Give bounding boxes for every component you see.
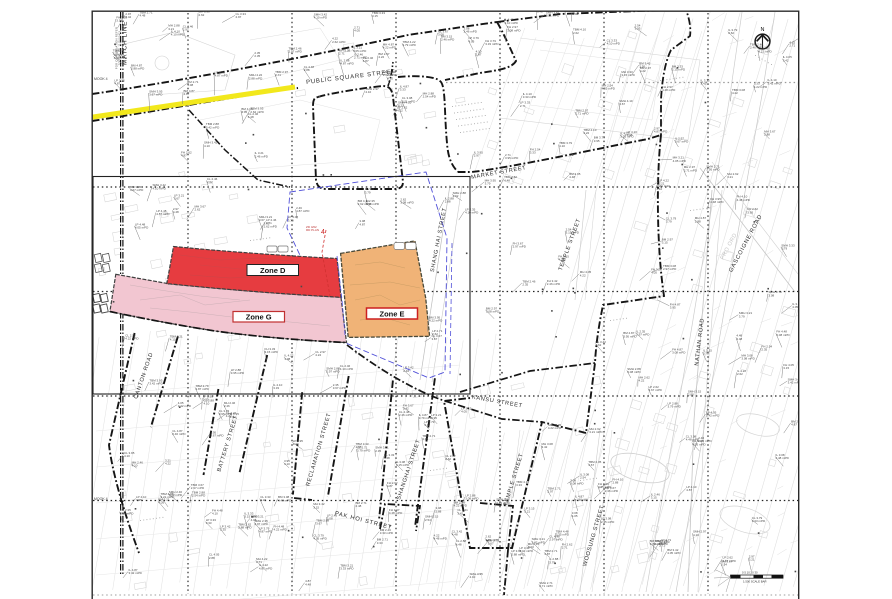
svg-text:3.95: 3.95: [635, 27, 641, 31]
svg-text:3.33: 3.33: [273, 386, 279, 390]
svg-text:2.46: 2.46: [403, 369, 409, 373]
svg-text:4.87 mPD: 4.87 mPD: [215, 74, 229, 78]
svg-text:3.15: 3.15: [651, 495, 657, 499]
svg-text:3.42: 3.42: [403, 407, 409, 411]
svg-text:3.42 mPD: 3.42 mPD: [149, 382, 163, 386]
svg-text:2.46 mPD: 2.46 mPD: [547, 282, 561, 286]
svg-text:4.48: 4.48: [456, 542, 462, 546]
svg-text:3.08 mPD: 3.08 mPD: [465, 497, 479, 501]
svg-text:3.33: 3.33: [516, 483, 522, 487]
svg-text:2.97: 2.97: [236, 15, 242, 19]
svg-text:2.88: 2.88: [695, 219, 701, 223]
svg-text:3.33: 3.33: [530, 150, 536, 154]
svg-text:4.10 mPD: 4.10 mPD: [153, 186, 167, 190]
svg-text:2.54 mPD: 2.54 mPD: [192, 493, 206, 497]
svg-text:2.35 mPD: 2.35 mPD: [601, 520, 615, 524]
svg-text:2.62 mPD: 2.62 mPD: [264, 224, 278, 228]
svg-text:2.71 mPD: 2.71 mPD: [575, 111, 589, 115]
svg-text:2.62: 2.62: [432, 332, 438, 336]
svg-text:3.79 mPD: 3.79 mPD: [668, 404, 682, 408]
svg-text:4.48 mPD: 4.48 mPD: [389, 511, 403, 515]
svg-text:4.48: 4.48: [173, 210, 179, 214]
svg-text:4.87: 4.87: [791, 423, 797, 427]
svg-text:4.10 mPD: 4.10 mPD: [340, 367, 354, 371]
svg-text:3.08 mPD: 3.08 mPD: [507, 28, 521, 32]
svg-text:2.71: 2.71: [266, 221, 272, 225]
svg-text:3.15 mPD: 3.15 mPD: [672, 67, 686, 71]
svg-text:4.48: 4.48: [305, 582, 311, 586]
svg-text:2.62: 2.62: [596, 343, 602, 347]
svg-text:2.54: 2.54: [721, 563, 727, 567]
svg-text:4.22 mPD: 4.22 mPD: [758, 50, 772, 54]
svg-text:4.87: 4.87: [181, 154, 187, 158]
svg-text:2.62: 2.62: [207, 180, 213, 184]
svg-text:3.08 mPD: 3.08 mPD: [400, 201, 414, 205]
svg-text:2.62: 2.62: [195, 207, 201, 211]
svg-text:3.79: 3.79: [703, 352, 709, 356]
svg-text:3.79: 3.79: [781, 247, 787, 251]
svg-text:3.79 mPD: 3.79 mPD: [403, 43, 417, 47]
svg-text:3.21 mPD: 3.21 mPD: [402, 99, 416, 103]
svg-text:3.08 mPD: 3.08 mPD: [627, 370, 641, 374]
svg-text:2.71: 2.71: [789, 43, 795, 47]
svg-text:3.95: 3.95: [594, 139, 600, 143]
svg-text:2.97 mPD: 2.97 mPD: [289, 50, 303, 54]
svg-text:RD PLAN: RD PLAN: [306, 228, 319, 232]
svg-text:3.67: 3.67: [174, 197, 180, 201]
svg-text:3.42: 3.42: [701, 81, 707, 85]
svg-text:4.10: 4.10: [170, 337, 176, 341]
svg-text:2.88: 2.88: [445, 200, 451, 204]
svg-text:4.22 mPD: 4.22 mPD: [754, 85, 768, 89]
svg-text:4: 4: [321, 229, 325, 236]
svg-text:4.10 mPD: 4.10 mPD: [314, 15, 328, 19]
svg-text:3.21: 3.21: [749, 558, 755, 562]
svg-text:4.05: 4.05: [241, 110, 247, 114]
svg-text:3.79 mPD: 3.79 mPD: [357, 449, 371, 453]
svg-text:3.33 mPD: 3.33 mPD: [752, 519, 766, 523]
svg-text:3.08 mPD: 3.08 mPD: [672, 350, 686, 354]
svg-text:1:500 SCALE BAR: 1:500 SCALE BAR: [743, 580, 766, 584]
svg-text:2.97 mPD: 2.97 mPD: [663, 267, 677, 271]
svg-text:2.97: 2.97: [183, 27, 189, 31]
svg-text:4.10: 4.10: [656, 187, 662, 191]
svg-text:2.71: 2.71: [256, 560, 262, 564]
svg-text:2.97 mPD: 2.97 mPD: [549, 538, 563, 542]
svg-text:2.62: 2.62: [445, 457, 451, 461]
svg-text:4.10 mPD: 4.10 mPD: [465, 211, 479, 215]
svg-text:4.48 mPD: 4.48 mPD: [366, 202, 380, 206]
svg-text:2.62: 2.62: [199, 13, 205, 17]
svg-text:4.48 mPD: 4.48 mPD: [434, 537, 448, 541]
svg-text:2.71 mPD: 2.71 mPD: [539, 584, 553, 588]
svg-text:3.67: 3.67: [316, 522, 322, 526]
svg-text:MOOK 4: MOOK 4: [94, 77, 108, 81]
svg-text:4.87 mPD: 4.87 mPD: [196, 387, 210, 391]
svg-text:4.87 mPD: 4.87 mPD: [340, 62, 354, 66]
svg-text:2.46 mPD: 2.46 mPD: [255, 154, 269, 158]
svg-text:4.48: 4.48: [736, 337, 742, 341]
svg-text:4.87 mPD: 4.87 mPD: [114, 56, 128, 60]
svg-text:3.67: 3.67: [488, 542, 494, 546]
svg-text:4.10 mPD: 4.10 mPD: [505, 21, 519, 25]
svg-text:4.22 mPD: 4.22 mPD: [429, 319, 443, 323]
svg-text:4.10: 4.10: [693, 533, 699, 537]
svg-text:2.46 mPD: 2.46 mPD: [464, 30, 478, 34]
svg-text:4.48 mPD: 4.48 mPD: [776, 456, 790, 460]
svg-text:3.15 mPD: 3.15 mPD: [396, 463, 410, 467]
svg-text:3.95: 3.95: [747, 210, 753, 214]
svg-text:4.05: 4.05: [158, 501, 164, 505]
svg-text:3.95: 3.95: [670, 305, 676, 309]
svg-text:4.87: 4.87: [114, 82, 120, 86]
svg-text:4.05 mPD: 4.05 mPD: [353, 49, 367, 53]
svg-text:4.22: 4.22: [315, 353, 321, 357]
svg-text:3.67: 3.67: [661, 541, 667, 545]
svg-text:3.08 mPD: 3.08 mPD: [741, 357, 755, 361]
svg-text:4.87 mPD: 4.87 mPD: [654, 129, 668, 133]
svg-text:3.67 mPD: 3.67 mPD: [149, 93, 163, 97]
svg-text:2.97: 2.97: [548, 489, 554, 493]
svg-text:4.10: 4.10: [365, 90, 371, 94]
svg-text:2.71 mPD: 2.71 mPD: [354, 56, 368, 60]
svg-text:4.22: 4.22: [640, 69, 646, 73]
svg-text:4.22 mPD: 4.22 mPD: [454, 504, 468, 508]
svg-text:4.48: 4.48: [140, 14, 146, 18]
svg-text:2.35: 2.35: [254, 54, 260, 58]
svg-text:4.87: 4.87: [686, 488, 692, 492]
svg-text:3.42 mPD: 3.42 mPD: [532, 540, 546, 544]
svg-text:3.79: 3.79: [365, 190, 371, 194]
svg-text:3.15: 3.15: [662, 241, 668, 245]
svg-text:2.46 mPD: 2.46 mPD: [441, 38, 455, 42]
svg-text:4.87: 4.87: [359, 222, 365, 226]
svg-text:4.22: 4.22: [397, 109, 403, 113]
svg-text:2.71: 2.71: [275, 73, 281, 77]
svg-text:2.54 mPD: 2.54 mPD: [120, 511, 134, 515]
svg-text:4.22 mPD: 4.22 mPD: [125, 336, 139, 340]
svg-text:4.05: 4.05: [469, 39, 475, 43]
svg-text:2.54 mPD: 2.54 mPD: [423, 94, 437, 98]
svg-text:3.08: 3.08: [327, 517, 333, 521]
svg-text:2.88: 2.88: [209, 556, 215, 560]
svg-text:4.10: 4.10: [132, 463, 138, 467]
svg-text:3.42: 3.42: [783, 58, 789, 62]
svg-text:3.33 mPD: 3.33 mPD: [340, 566, 354, 570]
svg-text:3.42 mPD: 3.42 mPD: [129, 571, 143, 575]
svg-text:4.48 mPD: 4.48 mPD: [662, 88, 676, 92]
svg-text:MOOK 4: MOOK 4: [94, 497, 108, 501]
svg-text:4.87 mPD: 4.87 mPD: [259, 566, 273, 570]
svg-text:4.05: 4.05: [354, 28, 360, 32]
svg-text:3.79: 3.79: [485, 182, 491, 186]
svg-text:0 5 10 20 30: 0 5 10 20 30: [742, 571, 758, 575]
svg-text:3.33 mPD: 3.33 mPD: [523, 95, 537, 99]
svg-text:3.08 mPD: 3.08 mPD: [776, 333, 790, 337]
svg-text:3.42 mPD: 3.42 mPD: [496, 501, 510, 505]
svg-text:3.15 mPD: 3.15 mPD: [566, 231, 580, 235]
svg-text:3.42: 3.42: [457, 511, 463, 515]
svg-text:2.71: 2.71: [520, 104, 526, 108]
svg-text:3.67: 3.67: [588, 463, 594, 467]
svg-text:3.15: 3.15: [313, 505, 319, 509]
svg-text:3.42 mPD: 3.42 mPD: [706, 414, 720, 418]
svg-text:4.22: 4.22: [732, 91, 738, 95]
svg-text:2.62: 2.62: [728, 31, 734, 35]
svg-text:4.48 mPD: 4.48 mPD: [710, 200, 724, 204]
svg-text:3.08 mPD: 3.08 mPD: [486, 309, 500, 313]
svg-text:4.05: 4.05: [251, 518, 257, 522]
svg-text:2.62: 2.62: [573, 31, 579, 35]
svg-text:2.88 mPD: 2.88 mPD: [238, 526, 252, 530]
svg-text:3.15: 3.15: [783, 366, 789, 370]
svg-text:4.87: 4.87: [363, 59, 369, 63]
svg-text:3.21 mPD: 3.21 mPD: [546, 14, 560, 18]
svg-text:2.46: 2.46: [224, 404, 230, 408]
svg-text:3.15 mPD: 3.15 mPD: [621, 73, 635, 77]
svg-text:2.62: 2.62: [230, 415, 236, 419]
svg-text:3.79: 3.79: [288, 218, 294, 222]
svg-text:3.67 mPD: 3.67 mPD: [723, 559, 737, 563]
svg-text:2.71 mPD: 2.71 mPD: [684, 168, 698, 172]
svg-text:4.48: 4.48: [452, 532, 458, 536]
svg-text:3.42 mPD: 3.42 mPD: [768, 81, 782, 85]
svg-text:3.42: 3.42: [125, 15, 131, 19]
svg-text:2.35: 2.35: [522, 283, 528, 287]
svg-text:Zone E: Zone E: [379, 310, 404, 319]
svg-text:3.33: 3.33: [293, 442, 299, 446]
svg-text:2.54: 2.54: [425, 518, 431, 522]
svg-text:4.10: 4.10: [204, 402, 210, 406]
svg-text:4.05 mPD: 4.05 mPD: [692, 442, 706, 446]
svg-text:2.88 mPD: 2.88 mPD: [131, 67, 145, 71]
svg-text:3.79: 3.79: [666, 220, 672, 224]
svg-text:3.95 mPD: 3.95 mPD: [231, 371, 245, 375]
svg-text:4.05 mPD: 4.05 mPD: [602, 87, 616, 91]
svg-text:4.10: 4.10: [559, 144, 565, 148]
svg-text:4.22: 4.22: [583, 131, 589, 135]
svg-text:3.95 mPD: 3.95 mPD: [505, 156, 519, 160]
svg-text:2.88: 2.88: [436, 509, 442, 513]
svg-text:2.88: 2.88: [304, 68, 310, 72]
svg-text:3.33 mPD: 3.33 mPD: [380, 531, 394, 535]
svg-text:N: N: [761, 27, 765, 33]
svg-text:2.71: 2.71: [113, 52, 119, 56]
svg-text:3.21: 3.21: [524, 509, 530, 513]
svg-text:2.97: 2.97: [476, 53, 482, 57]
svg-text:2.97 mPD: 2.97 mPD: [255, 522, 269, 526]
svg-text:2.97 mPD: 2.97 mPD: [513, 244, 527, 248]
svg-text:3.21 mPD: 3.21 mPD: [589, 430, 603, 434]
svg-text:4.10: 4.10: [284, 462, 290, 466]
svg-text:2.46 mPD: 2.46 mPD: [750, 46, 764, 50]
svg-text:3.67 mPD: 3.67 mPD: [210, 434, 224, 438]
svg-text:4.10 mPD: 4.10 mPD: [575, 498, 589, 502]
svg-text:4.22: 4.22: [639, 379, 645, 383]
svg-text:3.33: 3.33: [377, 541, 383, 545]
svg-text:4.05 mPD: 4.05 mPD: [135, 226, 149, 230]
svg-text:2.35: 2.35: [220, 528, 226, 532]
svg-text:2.88: 2.88: [688, 393, 694, 397]
svg-text:3.67 mPD: 3.67 mPD: [333, 386, 347, 390]
svg-text:4.05 mPD: 4.05 mPD: [313, 537, 327, 541]
svg-text:3.33: 3.33: [203, 398, 209, 402]
svg-text:3.67 mPD: 3.67 mPD: [675, 140, 689, 144]
svg-text:4.87 mPD: 4.87 mPD: [259, 530, 273, 534]
svg-text:2.62: 2.62: [737, 372, 743, 376]
svg-text:4.48: 4.48: [356, 504, 362, 508]
svg-text:3.42: 3.42: [542, 445, 548, 449]
svg-text:3.08: 3.08: [768, 293, 774, 297]
svg-text:4.05 mPD: 4.05 mPD: [673, 159, 687, 163]
svg-text:Zone G: Zone G: [246, 313, 272, 322]
svg-text:4.87: 4.87: [184, 92, 190, 96]
svg-text:3.15: 3.15: [372, 14, 378, 18]
svg-text:3.67 mPD: 3.67 mPD: [649, 388, 663, 392]
svg-text:3.67: 3.67: [619, 102, 625, 106]
svg-text:4.48 mPD: 4.48 mPD: [278, 498, 292, 502]
svg-text:2.71: 2.71: [562, 546, 568, 550]
svg-text:2.35: 2.35: [375, 449, 381, 453]
svg-text:3.42 mPD: 3.42 mPD: [519, 549, 533, 553]
svg-text:3.95 mPD: 3.95 mPD: [706, 168, 720, 172]
svg-text:4.22 mPD: 4.22 mPD: [383, 45, 397, 49]
svg-text:4.48: 4.48: [384, 456, 390, 460]
svg-text:2.97: 2.97: [474, 153, 480, 157]
svg-text:3.95: 3.95: [422, 437, 428, 441]
svg-text:2.46 mPD: 2.46 mPD: [172, 432, 186, 436]
svg-text:3.15 mPD: 3.15 mPD: [265, 350, 279, 354]
svg-text:3.33 mPD: 3.33 mPD: [485, 42, 499, 46]
svg-text:4.10: 4.10: [387, 76, 393, 80]
svg-text:2.88: 2.88: [764, 132, 770, 136]
svg-text:2.97 mPD: 2.97 mPD: [636, 332, 650, 336]
svg-text:2.88 mPD: 2.88 mPD: [249, 76, 263, 80]
svg-text:4.10: 4.10: [470, 575, 476, 579]
svg-text:2.35: 2.35: [761, 348, 767, 352]
svg-text:2.62 mPD: 2.62 mPD: [332, 40, 346, 44]
svg-text:4.22: 4.22: [378, 55, 384, 59]
svg-text:3.67 mPD: 3.67 mPD: [130, 188, 144, 192]
svg-text:4.87: 4.87: [544, 552, 550, 556]
svg-text:4.48 mPD: 4.48 mPD: [737, 198, 751, 202]
svg-text:4.87 mPD: 4.87 mPD: [156, 212, 170, 216]
svg-text:3.95: 3.95: [431, 416, 437, 420]
svg-text:3.42: 3.42: [424, 423, 430, 427]
svg-text:4.22 mPD: 4.22 mPD: [274, 527, 288, 531]
svg-text:2.71: 2.71: [339, 52, 345, 56]
svg-text:2.54: 2.54: [580, 476, 586, 480]
svg-text:3.42 mPD: 3.42 mPD: [206, 125, 220, 129]
svg-text:4.48: 4.48: [504, 178, 510, 182]
svg-text:3.21: 3.21: [727, 175, 733, 179]
svg-text:4.22: 4.22: [260, 498, 266, 502]
svg-text:2.46 mPD: 2.46 mPD: [399, 413, 413, 417]
svg-text:4.87 mPD: 4.87 mPD: [296, 209, 310, 213]
svg-text:4.10: 4.10: [124, 454, 130, 458]
svg-text:4.22 mPD: 4.22 mPD: [548, 426, 562, 430]
svg-text:2.88: 2.88: [613, 481, 619, 485]
svg-text:4.05 mPD: 4.05 mPD: [667, 551, 681, 555]
svg-text:4.05: 4.05: [461, 410, 467, 414]
svg-text:4.48: 4.48: [248, 115, 254, 119]
svg-text:3.08 mPD: 3.08 mPD: [570, 482, 584, 486]
svg-text:4.22: 4.22: [165, 462, 171, 466]
svg-text:4.48: 4.48: [569, 175, 575, 179]
svg-text:4.10: 4.10: [212, 512, 218, 516]
svg-text:4.22: 4.22: [580, 273, 586, 277]
svg-text:2.62: 2.62: [453, 194, 459, 198]
svg-text:4.05: 4.05: [572, 514, 578, 518]
svg-text:3.79: 3.79: [739, 314, 745, 318]
svg-text:4.10 mPD: 4.10 mPD: [607, 42, 621, 46]
svg-text:3.21: 3.21: [659, 182, 665, 186]
svg-text:3.95: 3.95: [136, 498, 142, 502]
svg-text:3.33: 3.33: [400, 88, 406, 92]
svg-text:4.87: 4.87: [387, 484, 393, 488]
svg-text:4.10: 4.10: [204, 144, 210, 148]
svg-text:4.05: 4.05: [558, 258, 564, 262]
svg-text:3.08: 3.08: [284, 357, 290, 361]
svg-text:3.33: 3.33: [206, 521, 212, 525]
svg-text:4.48: 4.48: [627, 133, 633, 137]
svg-text:4.10 mPD: 4.10 mPD: [171, 33, 185, 37]
svg-text:2.46 mPD: 2.46 mPD: [605, 489, 619, 493]
svg-text:3.08: 3.08: [187, 83, 193, 87]
svg-text:Zone D: Zone D: [260, 266, 286, 275]
